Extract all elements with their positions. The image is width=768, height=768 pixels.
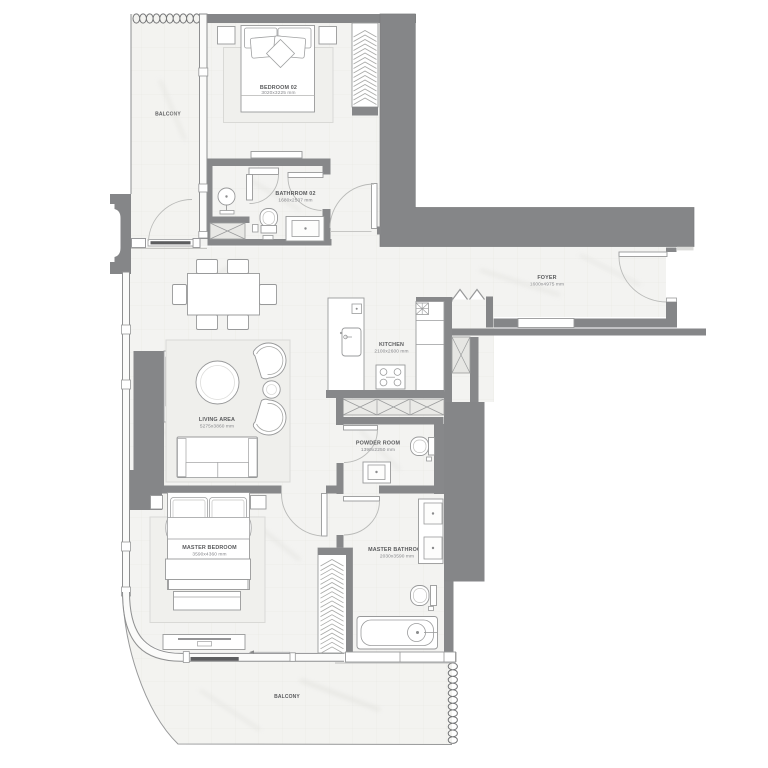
svg-text:2030x3590 mm: 2030x3590 mm xyxy=(380,554,414,560)
svg-text:1390x2250 mm: 1390x2250 mm xyxy=(361,447,395,453)
svg-text:BATHRROM 02: BATHRROM 02 xyxy=(275,191,315,197)
svg-text:3020x3225 mm: 3020x3225 mm xyxy=(261,90,295,96)
svg-text:KITCHEN: KITCHEN xyxy=(379,342,404,348)
svg-text:3590x4360 mm: 3590x4360 mm xyxy=(192,552,226,558)
svg-text:MASTER BATHROOM: MASTER BATHROOM xyxy=(368,547,426,553)
svg-text:FOYER: FOYER xyxy=(537,275,556,281)
svg-text:1680x2537 mm: 1680x2537 mm xyxy=(278,198,312,204)
svg-text:BALCONY: BALCONY xyxy=(274,694,300,700)
svg-text:2100x2600 mm: 2100x2600 mm xyxy=(374,349,408,355)
svg-text:BALCONY: BALCONY xyxy=(155,112,181,118)
svg-text:POWDER ROOM: POWDER ROOM xyxy=(356,441,401,447)
svg-text:MASTER BEDROOM: MASTER BEDROOM xyxy=(182,545,237,551)
svg-text:5275x3860 mm: 5275x3860 mm xyxy=(200,424,234,430)
svg-text:LIVING AREA: LIVING AREA xyxy=(199,417,235,423)
